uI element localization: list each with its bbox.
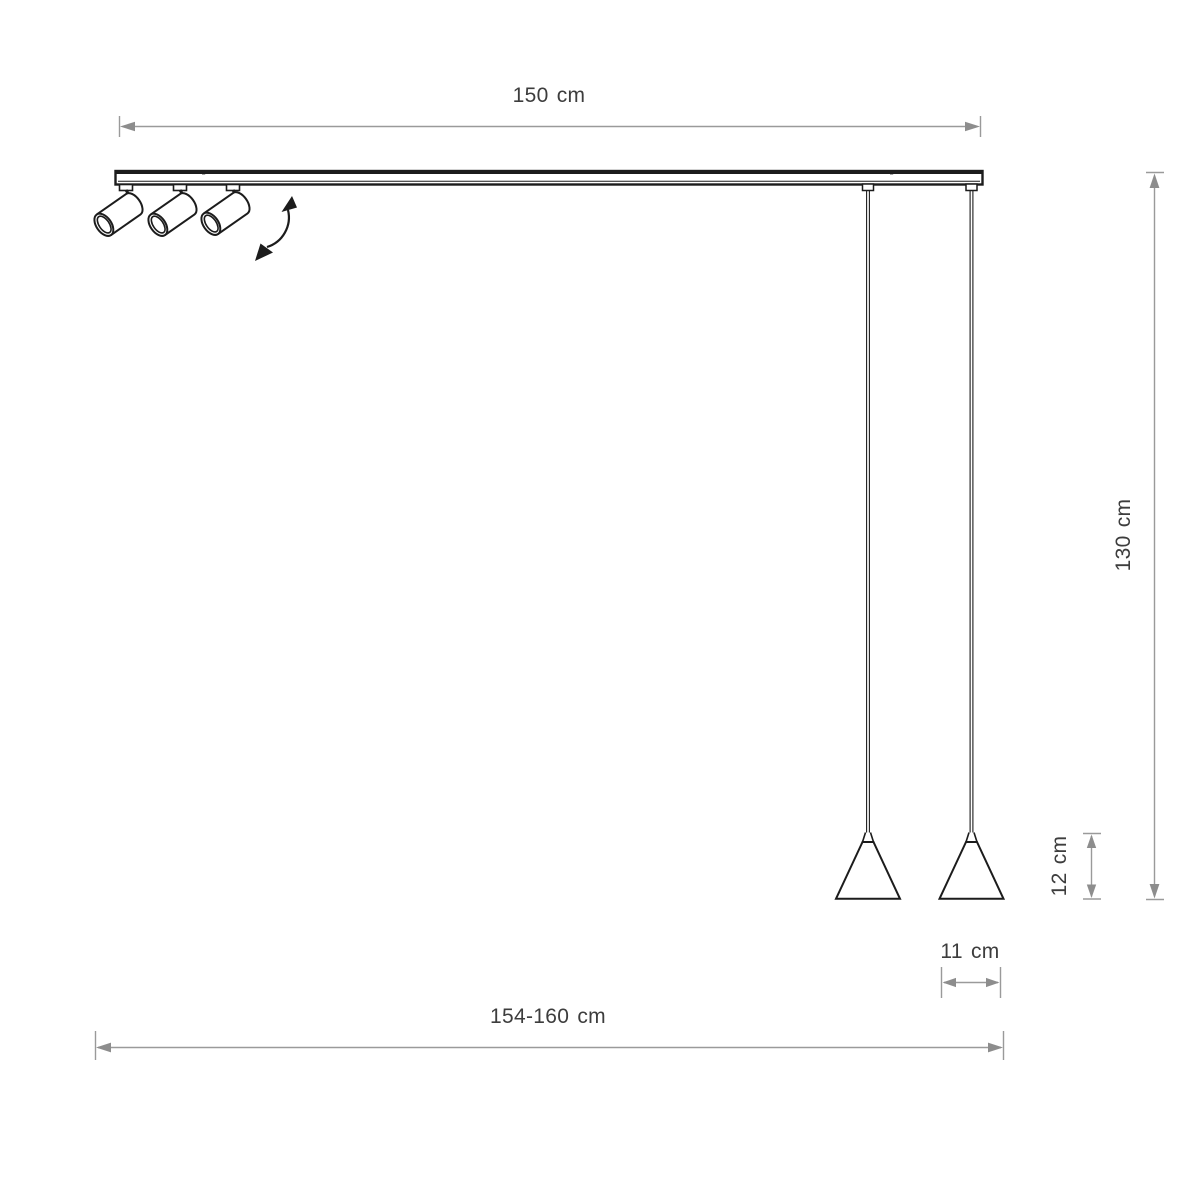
spotlight-1 [91, 185, 147, 240]
track-joint-mark [890, 171, 893, 174]
spotlight-3 [198, 185, 254, 239]
rotation-arrow-icon [255, 196, 297, 261]
cone-shade-2 [940, 833, 1004, 899]
pendant-cord-1 [863, 184, 874, 833]
track-joint-mark [202, 171, 205, 174]
shade-height-label: 12 cm [1047, 806, 1073, 926]
spotlight-bracket [227, 185, 240, 191]
shade-diameter-label: 11 cm [895, 939, 1045, 965]
dim-track-length [120, 116, 981, 137]
cord-connector [863, 184, 874, 191]
dim-shade-height [1083, 834, 1101, 900]
suspension-height-label: 130 cm [1111, 455, 1137, 615]
cone-shade-1 [836, 833, 900, 899]
diagram-canvas: 150 cm 130 cm 12 cm 11 cm 154-160 cm [0, 0, 1200, 1200]
track-length-label: 150 cm [449, 83, 649, 109]
overall-length-label: 154-160 cm [448, 1004, 648, 1030]
pendant-cord-2 [966, 184, 977, 833]
spotlight-2 [145, 185, 201, 240]
spotlight-bracket [174, 185, 187, 191]
spotlight-bracket [120, 185, 133, 191]
cord-connector [966, 184, 977, 191]
dim-suspension-height [1146, 173, 1164, 900]
track-bar [116, 171, 983, 185]
dim-overall-length [96, 1031, 1004, 1060]
dim-shade-diameter [942, 967, 1001, 998]
